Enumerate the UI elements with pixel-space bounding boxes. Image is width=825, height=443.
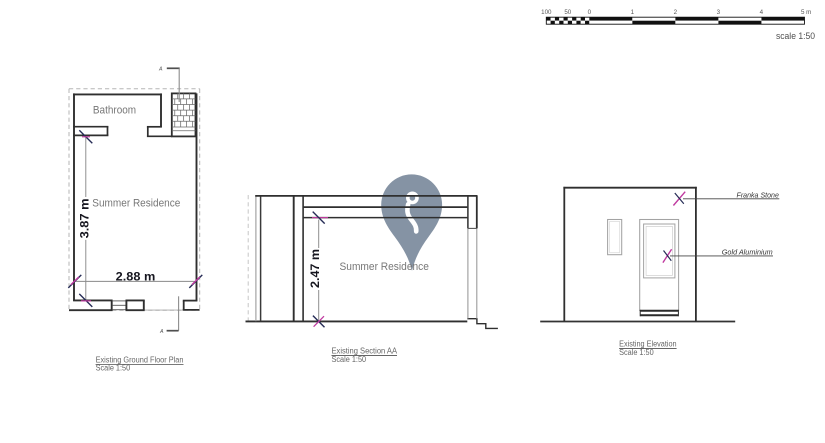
svg-text:Bathroom: Bathroom xyxy=(93,104,136,116)
svg-text:2.47 m: 2.47 m xyxy=(308,249,322,288)
svg-text:0: 0 xyxy=(588,9,592,16)
svg-text:scale 1:50: scale 1:50 xyxy=(776,31,815,41)
svg-text:3: 3 xyxy=(717,9,721,16)
svg-text:4: 4 xyxy=(760,9,764,16)
svg-text:Gold Aluminium: Gold Aluminium xyxy=(722,247,773,256)
svg-text:2.88 m: 2.88 m xyxy=(116,269,156,283)
svg-text:Scale 1:50: Scale 1:50 xyxy=(619,348,654,357)
svg-text:Summer Residence: Summer Residence xyxy=(92,197,180,209)
svg-text:Summer Residence: Summer Residence xyxy=(340,261,429,273)
svg-text:Scale 1:50: Scale 1:50 xyxy=(332,355,367,364)
svg-text:2: 2 xyxy=(674,9,678,16)
svg-text:Franka Stone: Franka Stone xyxy=(737,190,779,199)
svg-text:A: A xyxy=(158,67,163,73)
svg-text:A: A xyxy=(159,329,164,335)
svg-text:50: 50 xyxy=(564,9,571,16)
svg-text:Scale 1:50: Scale 1:50 xyxy=(96,364,131,373)
svg-text:1: 1 xyxy=(631,9,635,16)
svg-text:3.87 m: 3.87 m xyxy=(77,199,91,239)
svg-text:5 m: 5 m xyxy=(801,9,811,16)
svg-text:100: 100 xyxy=(541,9,552,16)
